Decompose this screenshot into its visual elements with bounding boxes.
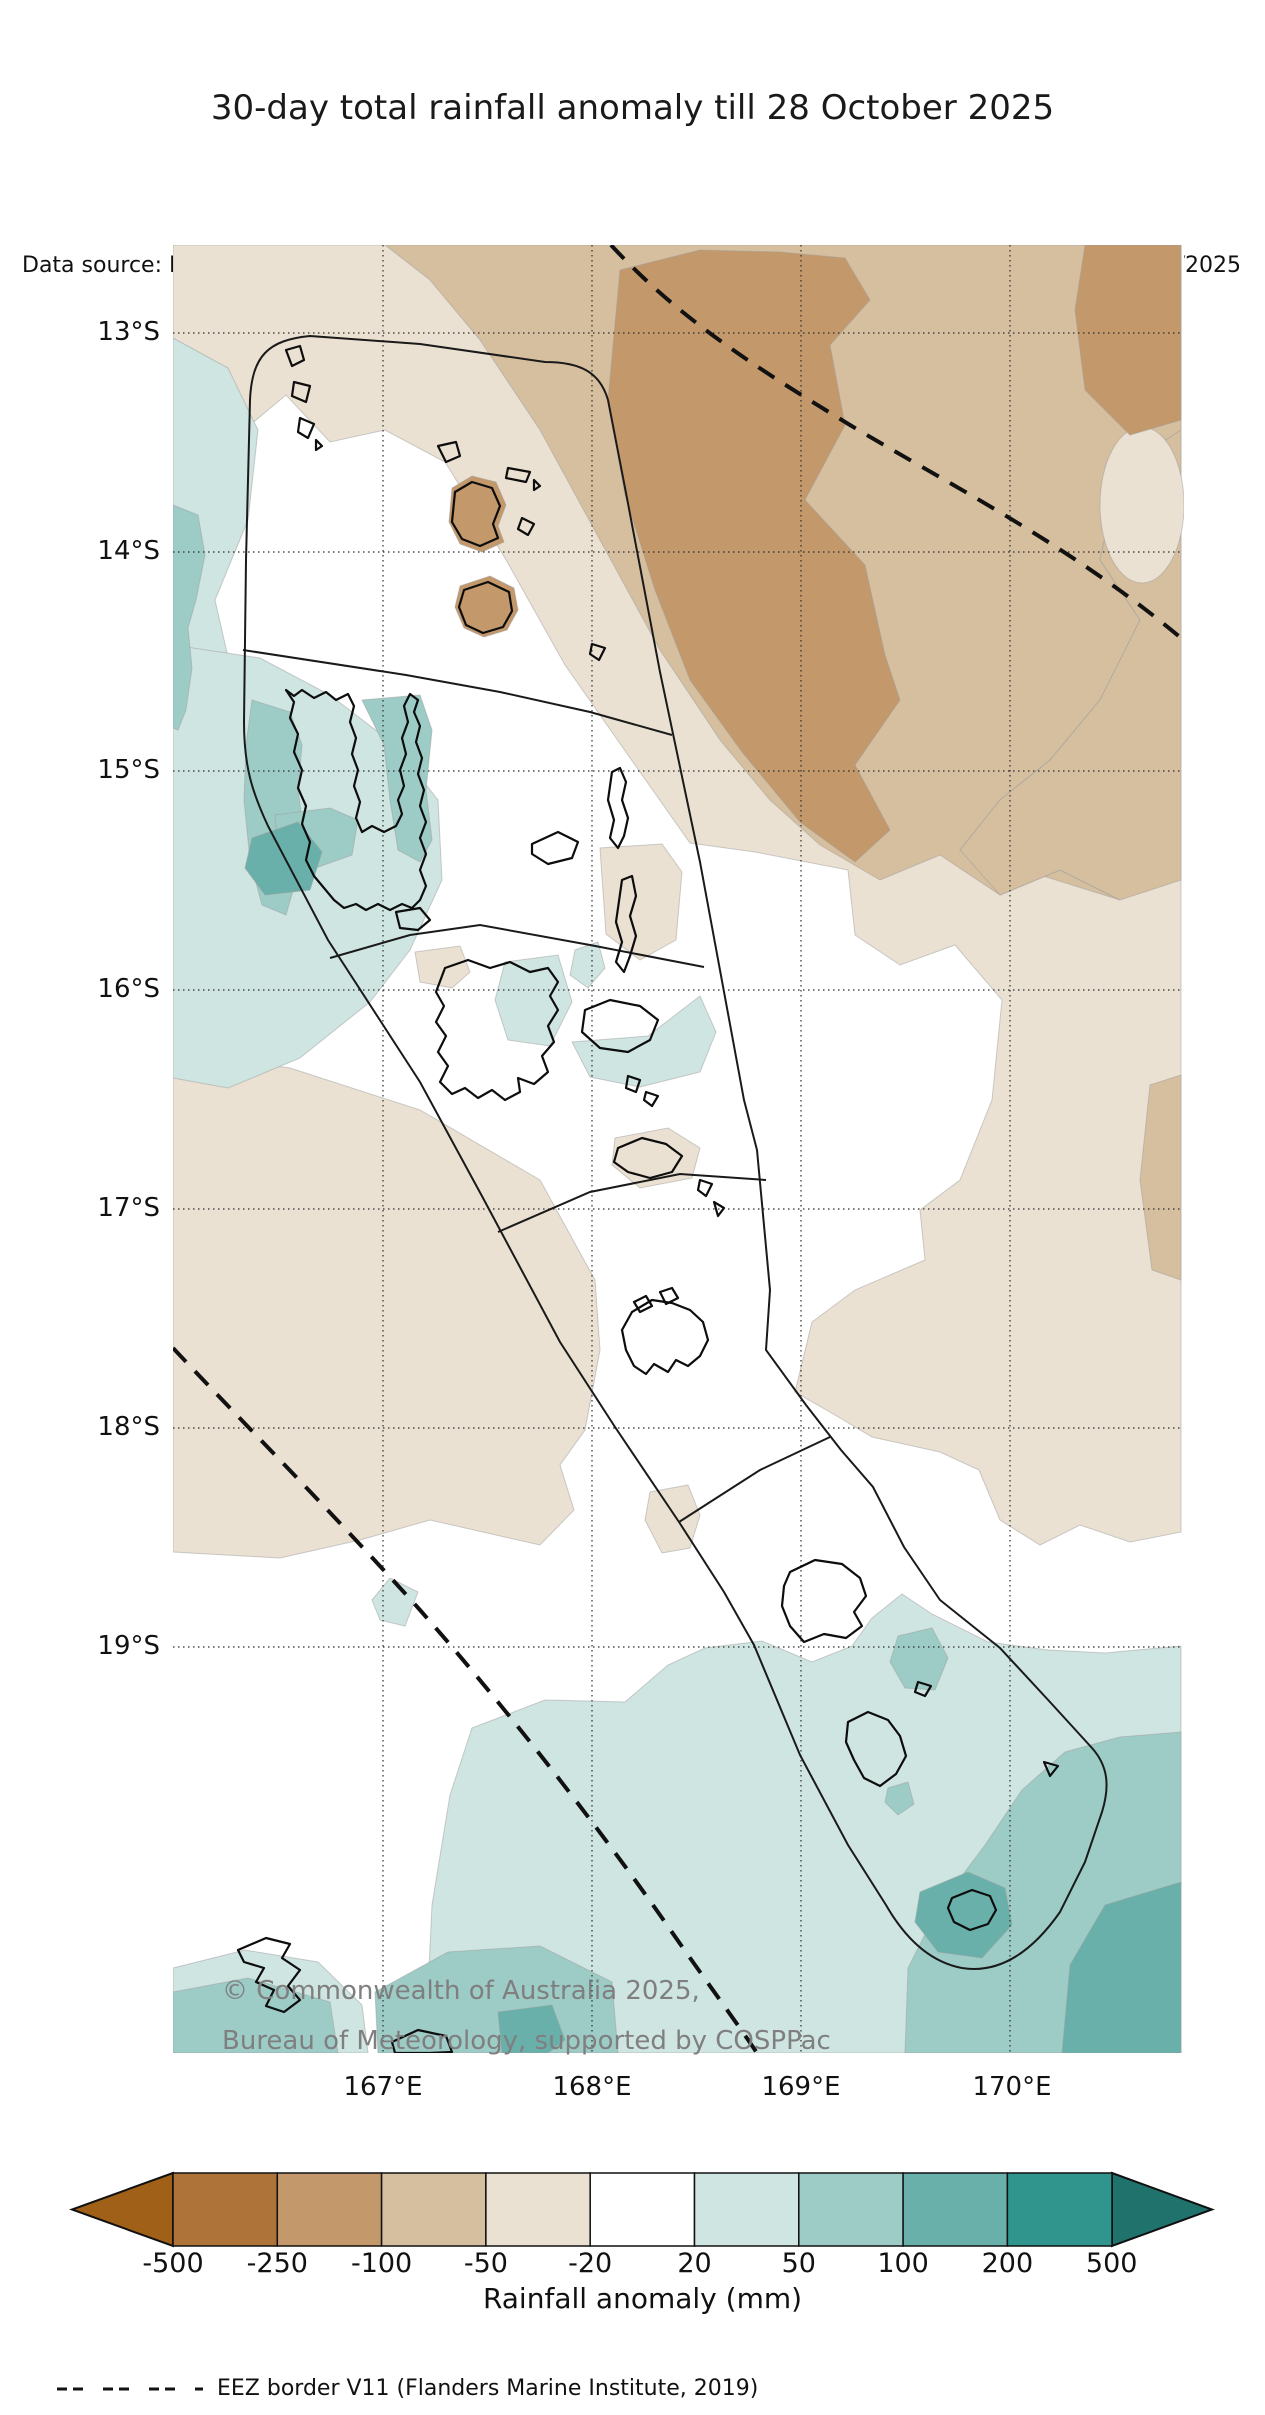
lat-tick-15s: 15°S [50, 755, 160, 785]
colorbar-seg-4 [590, 2173, 694, 2246]
cb-tick-5: 20 [677, 2248, 711, 2279]
colorbar-ticks: -500 -250 -100 -50 -20 20 50 100 200 500 [60, 2248, 1225, 2282]
cb-tick-8: 200 [982, 2248, 1034, 2279]
cb-tick-2: -100 [351, 2248, 412, 2279]
eez-legend-label: EEZ border V11 (Flanders Marine Institut… [217, 2376, 758, 2401]
lat-tick-19s: 19°S [50, 1631, 160, 1661]
lat-tick-14s: 14°S [50, 536, 160, 566]
colorbar-seg-0 [173, 2173, 277, 2246]
lat-tick-18s: 18°S [50, 1412, 160, 1442]
eez-legend: EEZ border V11 (Flanders Marine Institut… [55, 2376, 758, 2401]
colorbar-seg-5 [695, 2173, 799, 2246]
cb-tick-4: -20 [568, 2248, 612, 2279]
lat-tick-13s: 13°S [50, 317, 160, 347]
lat-tick-16s: 16°S [50, 974, 160, 1004]
colorbar-seg-6 [799, 2173, 903, 2246]
colorbar-right-arrow [1112, 2173, 1212, 2246]
lon-tick-168e: 168°E [552, 2072, 631, 2102]
colorbar-seg-7 [903, 2173, 1007, 2246]
colorbar-seg-8 [1007, 2173, 1112, 2246]
cb-tick-1: -250 [247, 2248, 308, 2279]
cb-tick-6: 50 [782, 2248, 816, 2279]
cb-tick-9: 500 [1086, 2248, 1138, 2279]
copyright-text: © Commonwealth of Australia 2025, Bureau… [222, 1966, 831, 2066]
colorbar [60, 2168, 1225, 2252]
copyright-line-1: © Commonwealth of Australia 2025, [222, 1966, 831, 2016]
rainfall-anomaly-map [173, 245, 1184, 2053]
colorbar-seg-3 [486, 2173, 590, 2246]
colorbar-seg-1 [277, 2173, 381, 2246]
cb-tick-0: -500 [142, 2248, 203, 2279]
lat-tick-17s: 17°S [50, 1193, 160, 1223]
colorbar-label: Rainfall anomaly (mm) [60, 2282, 1225, 2315]
dry-core-gaua [455, 576, 518, 637]
lon-tick-169e: 169°E [761, 2072, 840, 2102]
cb-tick-7: 100 [877, 2248, 929, 2279]
copyright-line-2: Bureau of Meteorology, supported by COSP… [222, 2016, 831, 2066]
cb-tick-3: -50 [464, 2248, 508, 2279]
lon-tick-167e: 167°E [343, 2072, 422, 2102]
page-title: 30-day total rainfall anomaly till 28 Oc… [0, 88, 1265, 128]
colorbar-left-arrow [72, 2173, 173, 2246]
lon-tick-170e: 170°E [972, 2072, 1051, 2102]
colorbar-seg-2 [382, 2173, 486, 2246]
eez-dash-sample [55, 2383, 205, 2395]
dry-pocket-east [1100, 427, 1184, 583]
